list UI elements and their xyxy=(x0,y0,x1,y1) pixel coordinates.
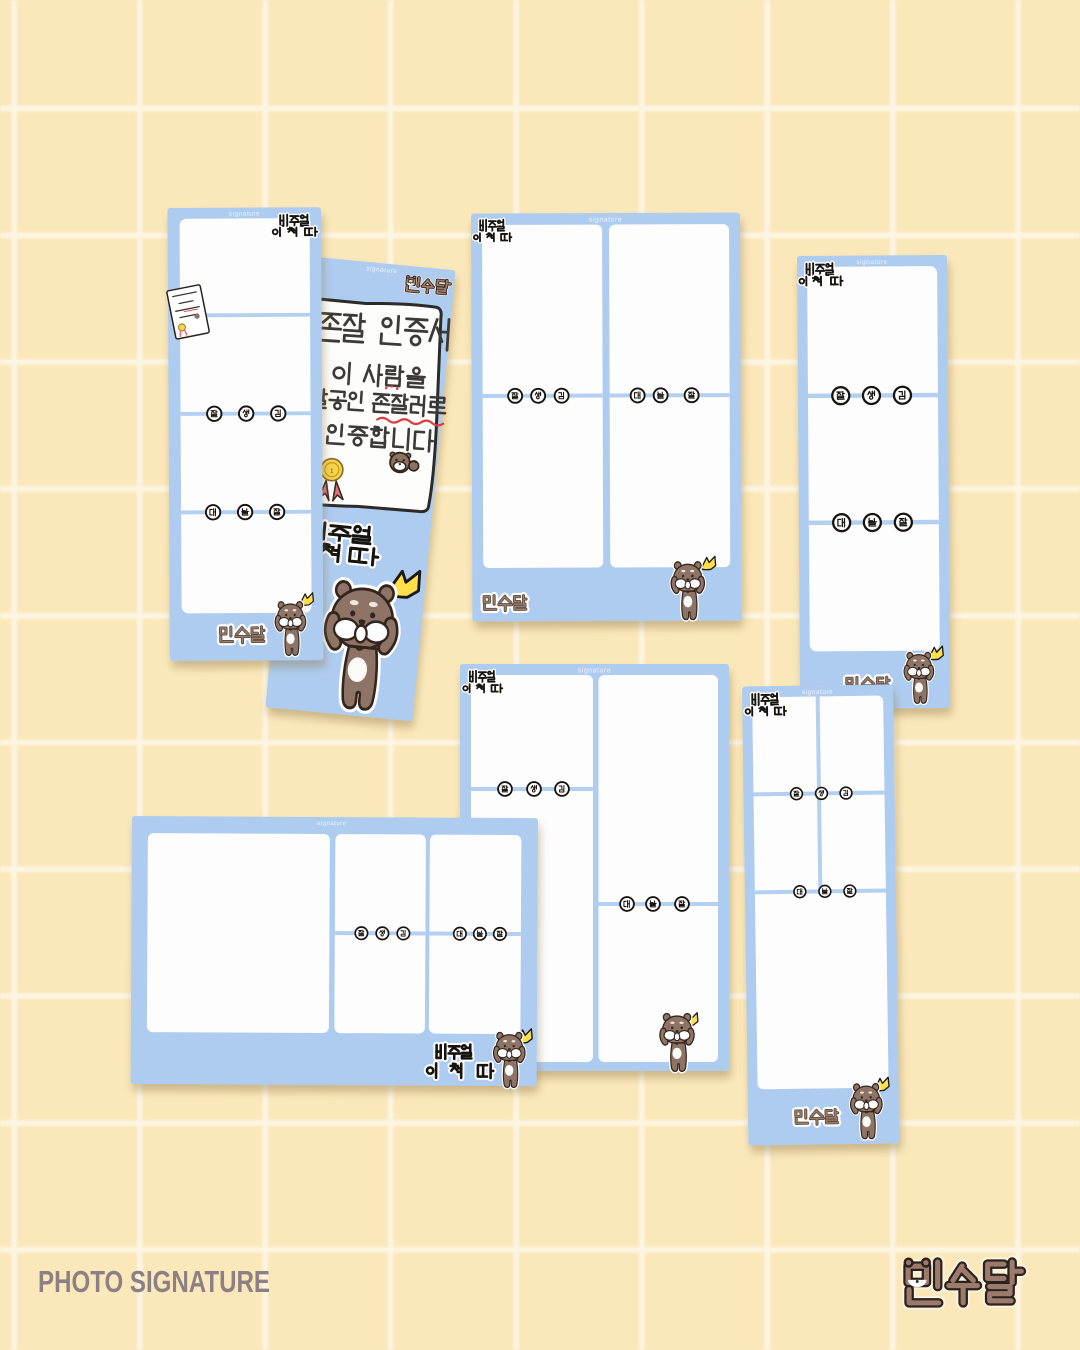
svg-text:signature: signature xyxy=(229,211,260,218)
svg-text:signature: signature xyxy=(802,689,833,696)
svg-text:PHOTO SIGNATURE: PHOTO SIGNATURE xyxy=(38,1265,270,1299)
svg-text:signature: signature xyxy=(578,668,611,675)
svg-text:signature: signature xyxy=(317,821,346,827)
svg-text:signature: signature xyxy=(589,216,622,223)
svg-text:signature: signature xyxy=(856,259,887,266)
